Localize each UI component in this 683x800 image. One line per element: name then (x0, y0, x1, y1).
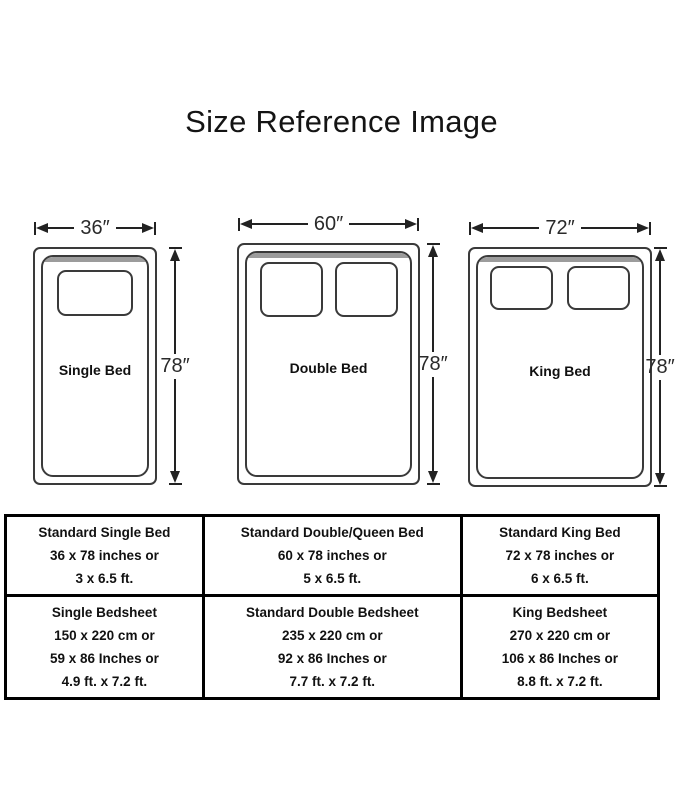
height-dimension-label: 78″ (160, 354, 189, 379)
sheet-fold (43, 257, 147, 262)
dimension-end-tick (427, 483, 440, 485)
table-cell-line: 6 x 6.5 ft. (465, 567, 655, 590)
bed-name-label: Double Bed (247, 360, 410, 376)
arrowhead-right-icon (637, 223, 649, 233)
mattress: King Bed (476, 255, 644, 479)
dimension-line (349, 223, 405, 225)
table-cell-line: Standard King Bed (465, 521, 655, 544)
dimension-end-tick (654, 485, 667, 487)
dimension-end-tick (649, 222, 651, 235)
table-cell-line: 150 x 220 cm or (9, 624, 200, 647)
dimension-line (174, 379, 176, 472)
arrowhead-left-icon (240, 219, 252, 229)
height-dimension-label: 78″ (418, 352, 447, 377)
table-cell-line: Standard Double/Queen Bed (207, 521, 458, 544)
arrowhead-up-icon (428, 245, 438, 257)
arrowhead-left-icon (36, 223, 48, 233)
dimension-line (48, 227, 74, 229)
table-cell-line: 36 x 78 inches or (9, 544, 200, 567)
pillow-row (247, 262, 410, 317)
table-cell-line: 72 x 78 inches or (465, 544, 655, 567)
width-dimension-arrow: 72″ (469, 217, 651, 239)
king-bed-figure: 72″ King Bed 78″ (468, 217, 652, 487)
mattress: Double Bed (245, 251, 412, 477)
height-dimension-arrow: 78″ (411, 243, 455, 485)
table-cell-line: Standard Single Bed (9, 521, 200, 544)
height-dimension-label: 78″ (645, 355, 674, 380)
mattress: Single Bed (41, 255, 149, 477)
pillow-row (43, 270, 147, 316)
cell-standard-single-bed: Standard Single Bed 36 x 78 inches or 3 … (6, 516, 204, 596)
page-title: Size Reference Image (0, 104, 683, 140)
width-dimension-label: 60″ (308, 213, 349, 236)
table-cell-line: Single Bedsheet (9, 601, 200, 624)
bed-name-label: King Bed (478, 363, 642, 379)
size-reference-table: Standard Single Bed 36 x 78 inches or 3 … (4, 514, 660, 700)
dimension-line (659, 261, 661, 355)
table-cell-line: 7.7 ft. x 7.2 ft. (207, 670, 458, 693)
table-cell-line: 92 x 86 Inches or (207, 647, 458, 670)
dimension-end-tick (154, 222, 156, 235)
arrowhead-down-icon (655, 473, 665, 485)
arrowhead-down-icon (428, 471, 438, 483)
cell-king-bedsheet: King Bedsheet 270 x 220 cm or 106 x 86 I… (461, 596, 658, 699)
single-bed-figure: 36″ Single Bed 78″ (33, 217, 157, 485)
height-dimension-arrow: 78″ (153, 247, 197, 485)
arrowhead-left-icon (471, 223, 483, 233)
pillow (335, 262, 398, 317)
bed-name-label: Single Bed (43, 362, 147, 378)
dimension-line (581, 227, 637, 229)
pillow (490, 266, 553, 310)
dimension-end-tick (169, 483, 182, 485)
double-bed-figure: 60″ Double Bed 78″ (237, 213, 420, 485)
table-cell-line: 3 x 6.5 ft. (9, 567, 200, 590)
bed-outline: Double Bed (237, 243, 420, 485)
table-cell-line: 59 x 86 Inches or (9, 647, 200, 670)
pillow (260, 262, 323, 317)
dimension-line (174, 261, 176, 354)
table-cell-line: 270 x 220 cm or (465, 624, 655, 647)
arrowhead-down-icon (170, 471, 180, 483)
arrowhead-up-icon (170, 249, 180, 261)
arrowhead-right-icon (142, 223, 154, 233)
sheet-fold (247, 253, 410, 258)
table-cell-line: 8.8 ft. x 7.2 ft. (465, 670, 655, 693)
table-cell-line: 106 x 86 Inches or (465, 647, 655, 670)
width-dimension-arrow: 36″ (34, 217, 156, 239)
dimension-end-tick (417, 218, 419, 231)
height-dimension-arrow: 78″ (638, 247, 682, 487)
arrowhead-up-icon (655, 249, 665, 261)
width-dimension-label: 72″ (539, 217, 580, 240)
cell-standard-king-bed: Standard King Bed 72 x 78 inches or 6 x … (461, 516, 658, 596)
cell-single-bedsheet: Single Bedsheet 150 x 220 cm or 59 x 86 … (6, 596, 204, 699)
bed-outline: Single Bed (33, 247, 157, 485)
pillow (567, 266, 630, 310)
pillow (57, 270, 133, 316)
table-cell-line: King Bedsheet (465, 601, 655, 624)
dimension-line (432, 377, 434, 472)
dimension-line (432, 257, 434, 352)
table-cell-line: 5 x 6.5 ft. (207, 567, 458, 590)
bed-outline: King Bed (468, 247, 652, 487)
width-dimension-label: 36″ (74, 217, 115, 240)
pillow-row (478, 266, 642, 310)
width-dimension-arrow: 60″ (238, 213, 419, 235)
arrowhead-right-icon (405, 219, 417, 229)
cell-standard-double-bedsheet: Standard Double Bedsheet 235 x 220 cm or… (203, 596, 461, 699)
table-cell-line: 60 x 78 inches or (207, 544, 458, 567)
table-row-bed-sizes: Standard Single Bed 36 x 78 inches or 3 … (6, 516, 659, 596)
size-reference-page: Size Reference Image 36″ Single Bed (0, 0, 683, 800)
dimension-line (116, 227, 142, 229)
table-row-bedsheet-sizes: Single Bedsheet 150 x 220 cm or 59 x 86 … (6, 596, 659, 699)
dimension-line (483, 227, 539, 229)
table-cell-line: 4.9 ft. x 7.2 ft. (9, 670, 200, 693)
cell-standard-double-queen-bed: Standard Double/Queen Bed 60 x 78 inches… (203, 516, 461, 596)
table-cell-line: Standard Double Bedsheet (207, 601, 458, 624)
table-cell-line: 235 x 220 cm or (207, 624, 458, 647)
dimension-line (252, 223, 308, 225)
sheet-fold (478, 257, 642, 262)
dimension-line (659, 380, 661, 474)
